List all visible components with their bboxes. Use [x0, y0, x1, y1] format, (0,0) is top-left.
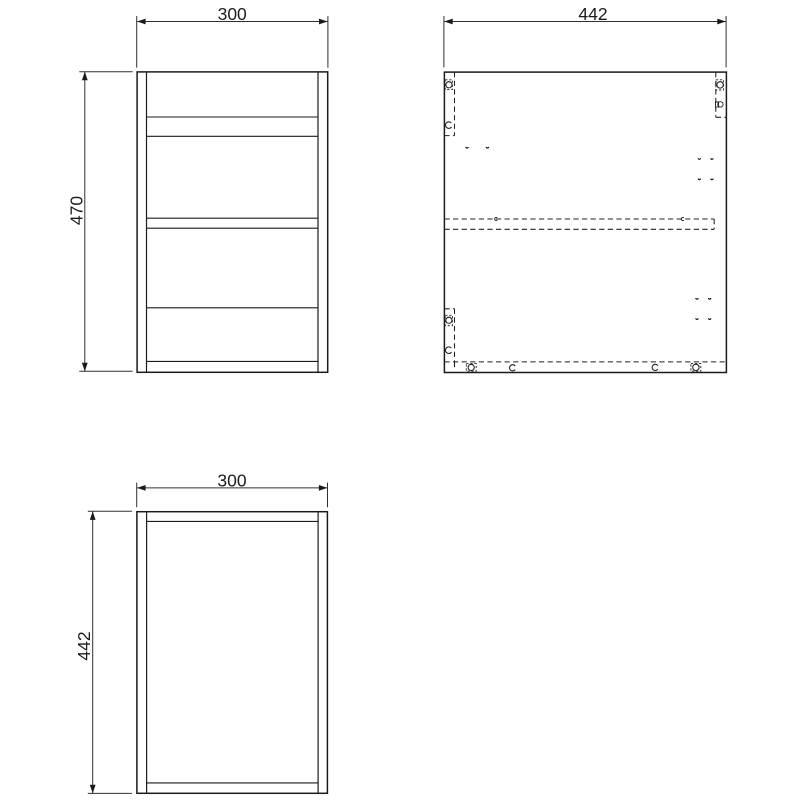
svg-text:470: 470 [66, 196, 86, 225]
svg-text:442: 442 [74, 631, 94, 660]
svg-text:442: 442 [578, 4, 607, 24]
svg-text:300: 300 [217, 470, 246, 490]
svg-text:300: 300 [218, 4, 247, 24]
